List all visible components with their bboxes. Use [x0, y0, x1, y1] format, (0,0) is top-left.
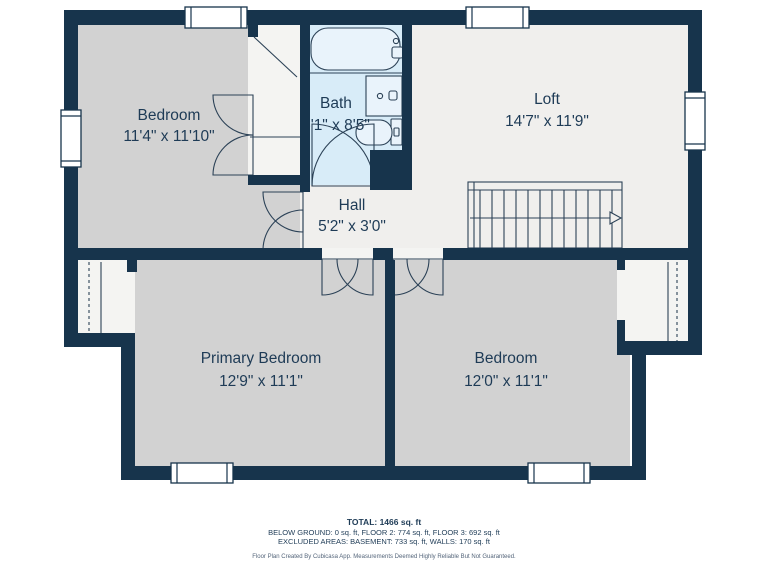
label-primary-bedroom-name: Primary Bedroom: [201, 350, 322, 367]
label-bath-dims: 5'1" x 8'5": [302, 117, 370, 134]
wall-closet-left-stub: [127, 260, 137, 272]
floor-threshold-bedroom: [393, 248, 443, 260]
label-bedroom-top-left-dims: 11'4" x 11'10": [123, 128, 214, 145]
wall-bath-right: [402, 10, 412, 150]
sink-faucet: [389, 91, 397, 100]
total-area-text: TOTAL: 1466 sq. ft: [0, 517, 768, 528]
floor-bedroom-top-left-ext: [248, 185, 300, 248]
wall-bedroom-br-right: [632, 341, 646, 480]
wall-closet-right-stub-top: [617, 260, 625, 270]
label-hall-dims: 5'2" x 3'0": [318, 218, 386, 235]
window-bottom-2: [528, 463, 590, 483]
label-bedroom-br-dims: 12'0" x 11'1": [464, 373, 548, 390]
plan-summary: TOTAL: 1466 sq. ft BELOW GROUND: 0 sq. f…: [0, 517, 768, 560]
wall-mid-left: [64, 248, 322, 260]
floor-threshold-primary: [322, 248, 373, 260]
wall-mid-center: [373, 248, 393, 260]
wall-left: [64, 10, 78, 347]
wall-closet-right-stub-bottom: [617, 320, 625, 341]
wall-bath-notch: [370, 150, 412, 190]
toilet-button: [394, 128, 399, 136]
floor-hall: [310, 185, 412, 248]
excluded-areas-text: EXCLUDED AREAS: BASEMENT: 733 sq. ft, WA…: [0, 537, 768, 546]
floor-plan-page: Bedroom 11'4" x 11'10" Bath 5'1" x 8'5" …: [0, 0, 768, 576]
stair-outline: [468, 182, 622, 248]
window-left: [61, 110, 81, 167]
floor-door-gap: [300, 192, 310, 248]
sink-drain: [377, 93, 382, 98]
wall-top: [64, 10, 702, 25]
floor-closet-left: [78, 260, 135, 333]
wall-closet-left-bottom: [64, 333, 135, 347]
wall-closet-right-bottom: [617, 341, 702, 355]
wall-bedroom-tl-stub: [248, 10, 258, 37]
window-top-1: [185, 7, 247, 28]
wall-right: [688, 10, 702, 355]
window-top-2: [466, 7, 529, 28]
window-bottom-1: [171, 463, 233, 483]
label-hall-name: Hall: [339, 197, 366, 214]
bathtub-faucet-knob: [393, 38, 398, 43]
staircase: [468, 182, 622, 248]
bathtub-faucet: [392, 47, 403, 58]
floor-plan: Bedroom 11'4" x 11'10" Bath 5'1" x 8'5" …: [0, 0, 768, 510]
wall-hall-stub: [300, 185, 310, 192]
floor-closet-strip: [248, 25, 300, 175]
wall-primary-left: [121, 333, 135, 480]
label-loft-name: Loft: [534, 91, 561, 108]
label-bedroom-br-name: Bedroom: [475, 350, 538, 367]
label-bath-name: Bath: [320, 95, 352, 112]
bathtub: [311, 28, 400, 70]
wall-bath-left: [300, 10, 310, 192]
window-right: [685, 92, 705, 150]
wall-mid-right: [443, 248, 702, 260]
label-bedroom-top-left-name: Bedroom: [138, 107, 201, 124]
wall-bedroom-divider: [385, 260, 395, 466]
floor-areas-text: BELOW GROUND: 0 sq. ft, FLOOR 2: 774 sq.…: [0, 528, 768, 537]
label-primary-bedroom-dims: 12'9" x 11'1": [219, 373, 303, 390]
label-loft-dims: 14'7" x 11'9": [505, 113, 589, 130]
wall-closet-strip-bottom: [248, 175, 310, 185]
disclaimer-text: Floor Plan Created By Cubicasa App. Meas…: [0, 554, 768, 560]
